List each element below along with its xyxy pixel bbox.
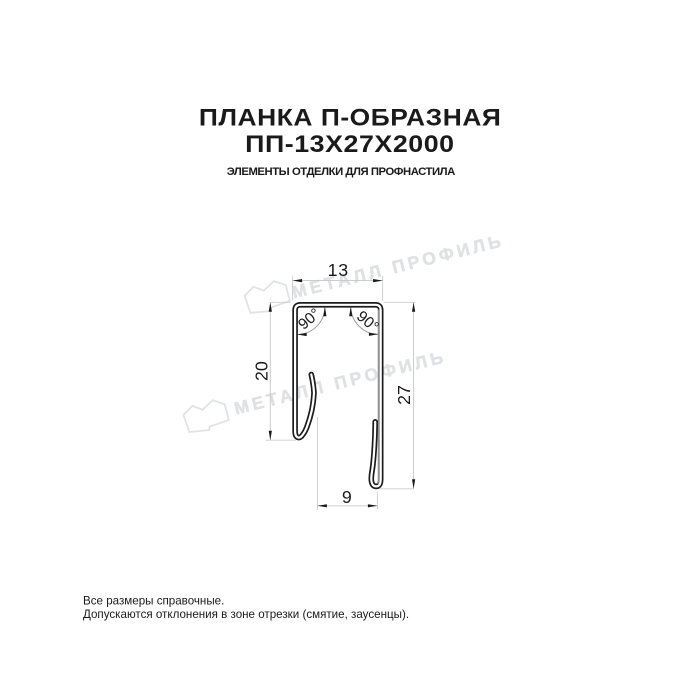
svg-text:Допускаются отклонения в зоне: Допускаются отклонения в зоне отрезки (с… [83, 608, 409, 621]
svg-text:90°: 90° [295, 305, 324, 333]
svg-text:ПП-13Х27Х2000: ПП-13Х27Х2000 [245, 131, 455, 158]
svg-text:9: 9 [342, 487, 352, 507]
svg-text:20: 20 [252, 361, 272, 381]
svg-text:13: 13 [328, 260, 349, 280]
svg-text:МЕТАЛЛ ПРОФИЛЬ: МЕТАЛЛ ПРОФИЛЬ [290, 230, 506, 302]
svg-text:90°: 90° [353, 308, 382, 336]
svg-text:27: 27 [394, 385, 414, 405]
svg-text:Все размеры справочные.: Все размеры справочные. [83, 594, 224, 607]
svg-text:ЭЛЕМЕНТЫ ОТДЕЛКИ ДЛЯ ПРОФНАСТИ: ЭЛЕМЕНТЫ ОТДЕЛКИ ДЛЯ ПРОФНАСТИЛА [227, 166, 455, 178]
svg-text:МЕТАЛЛ ПРОФИЛЬ: МЕТАЛЛ ПРОФИЛЬ [232, 346, 448, 418]
svg-text:ПЛАНКА П-ОБРАЗНАЯ: ПЛАНКА П-ОБРАЗНАЯ [199, 105, 502, 132]
